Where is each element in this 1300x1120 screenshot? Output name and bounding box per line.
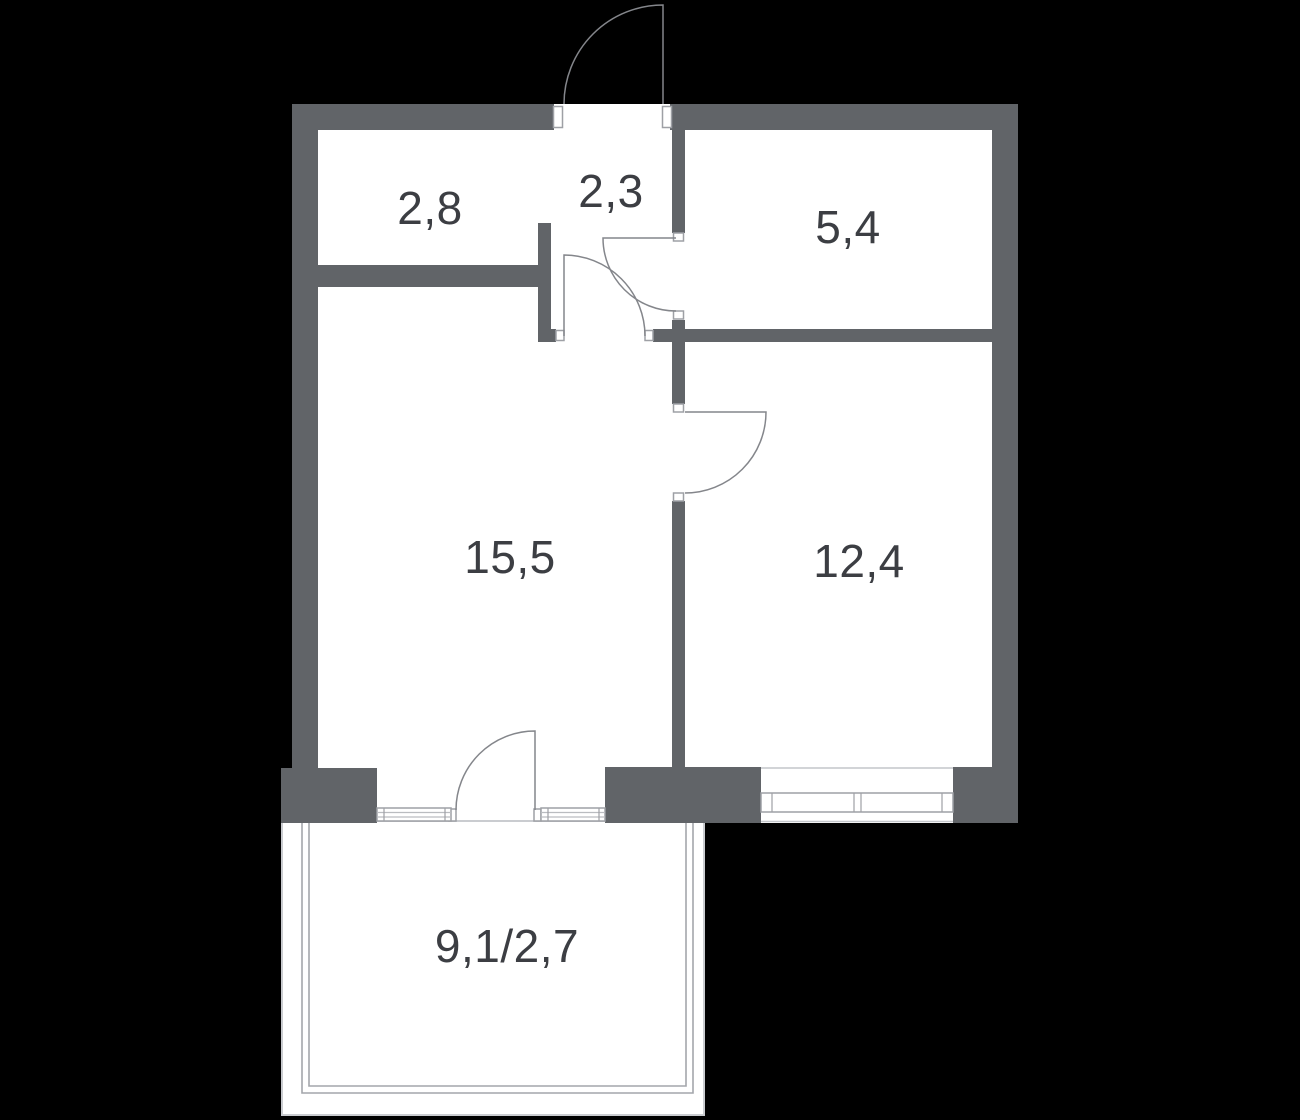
- wall-right: [992, 104, 1018, 823]
- bathroom-door-jamb-bottom: [674, 311, 684, 319]
- bathroom-door-jamb-top: [674, 233, 684, 241]
- bedroom-door-jamb-bottom: [674, 493, 684, 501]
- room-label-bedroom: 12,4: [813, 535, 905, 587]
- wall-bathroom-bedroom-divider: [653, 329, 992, 342]
- wall-living-bedroom-divider: [672, 501, 685, 768]
- balcony-door-jamb-right: [534, 809, 541, 821]
- pier-bottom-center: [605, 767, 761, 823]
- living-door-jamb-left: [556, 331, 564, 341]
- wall-hallway-foot: [538, 329, 556, 342]
- wall-center-cross: [672, 320, 685, 404]
- entry-jamb-right: [663, 107, 672, 128]
- wall-hallway-left: [538, 223, 551, 342]
- wall-left: [292, 104, 318, 768]
- wall-top-right: [670, 104, 1018, 130]
- window-bedroom: [761, 793, 953, 812]
- room-label-balcony: 9,1/2,7: [435, 920, 579, 972]
- wall-top-left: [292, 104, 554, 130]
- floor-plan-svg: 2,8 2,3 5,4 15,5 12,4 9,1/2,7: [0, 0, 1300, 1120]
- wall-wardrobe-bottom: [318, 265, 538, 287]
- room-label-living-room: 15,5: [464, 531, 556, 583]
- floor-plan-canvas: 2,8 2,3 5,4 15,5 12,4 9,1/2,7: [0, 0, 1300, 1120]
- room-label-bathroom: 5,4: [815, 201, 880, 253]
- entry-jamb-left: [554, 107, 563, 128]
- window-living-room-right: [541, 808, 605, 821]
- wall-bathroom-left-upper: [672, 130, 685, 233]
- room-label-hallway: 2,3: [578, 165, 643, 217]
- bedroom-door-jamb-top: [674, 404, 684, 412]
- room-label-wardrobe: 2,8: [397, 182, 462, 234]
- window-living-room-left: [377, 808, 451, 821]
- living-door-jamb-right: [645, 331, 653, 341]
- pier-bottom-right: [953, 767, 1018, 823]
- pier-bottom-left: [281, 768, 377, 823]
